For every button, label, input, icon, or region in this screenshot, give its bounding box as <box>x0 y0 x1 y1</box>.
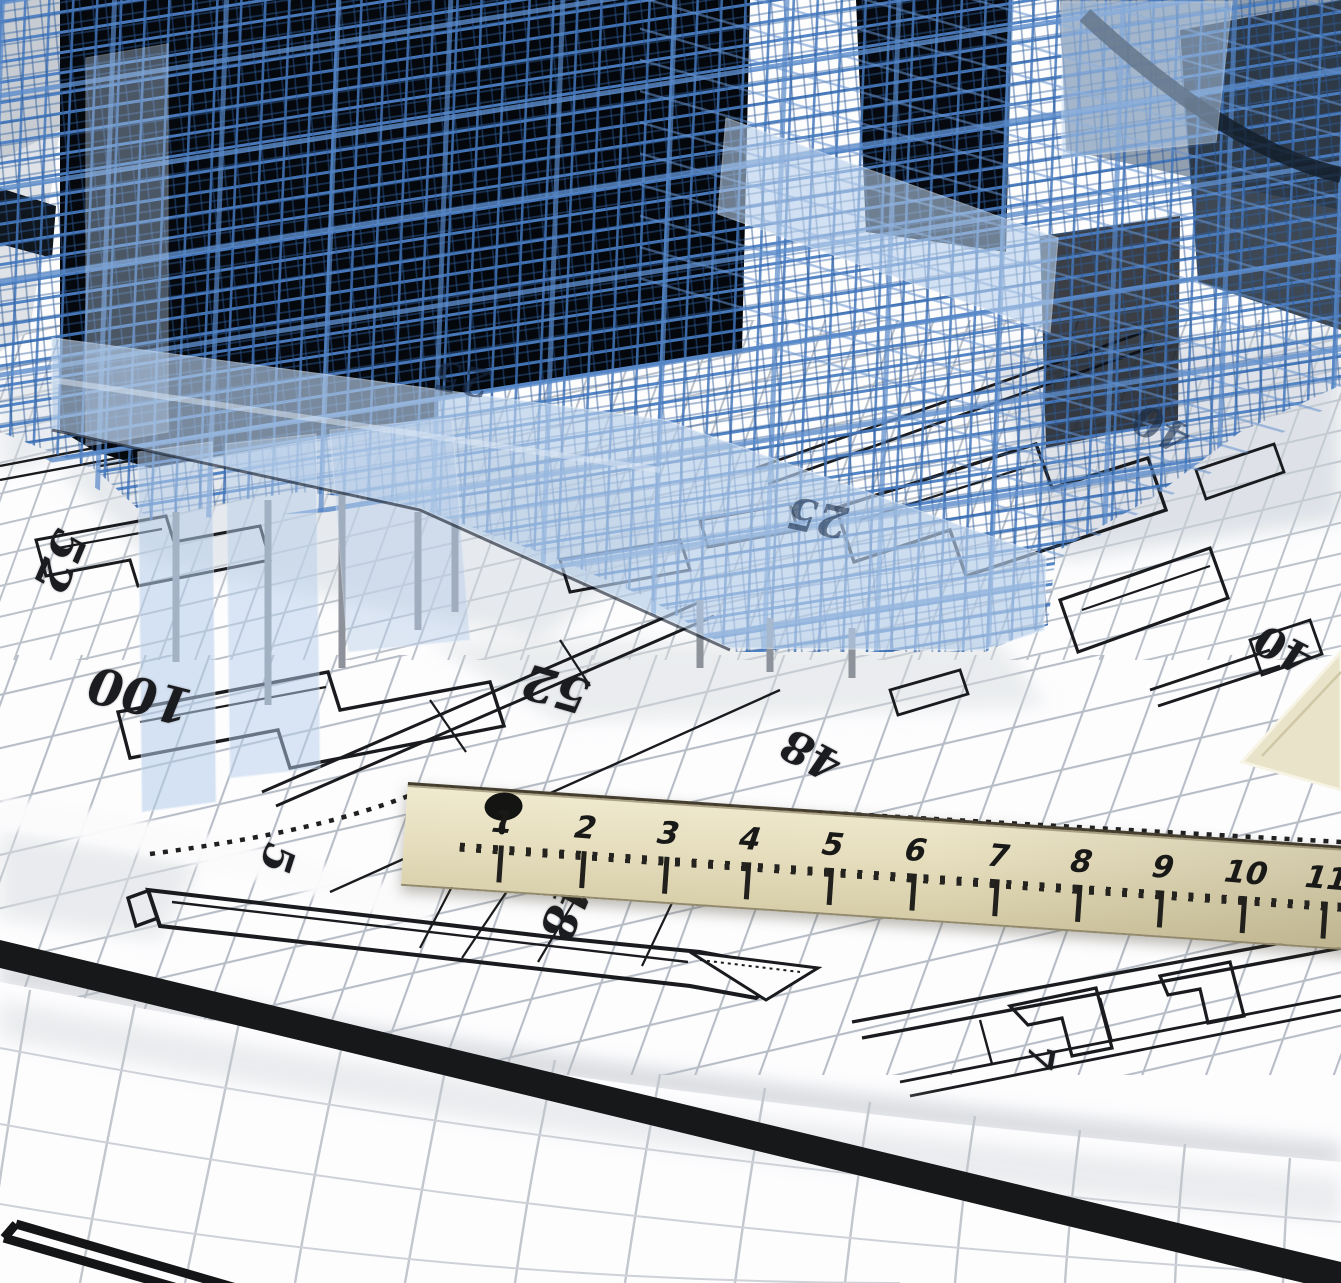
scene-artwork <box>0 0 1341 1283</box>
blueprint-scene: 52 100 52 48 40 5 48 7 25 25 40 1 2 3 4 … <box>0 0 1341 1283</box>
